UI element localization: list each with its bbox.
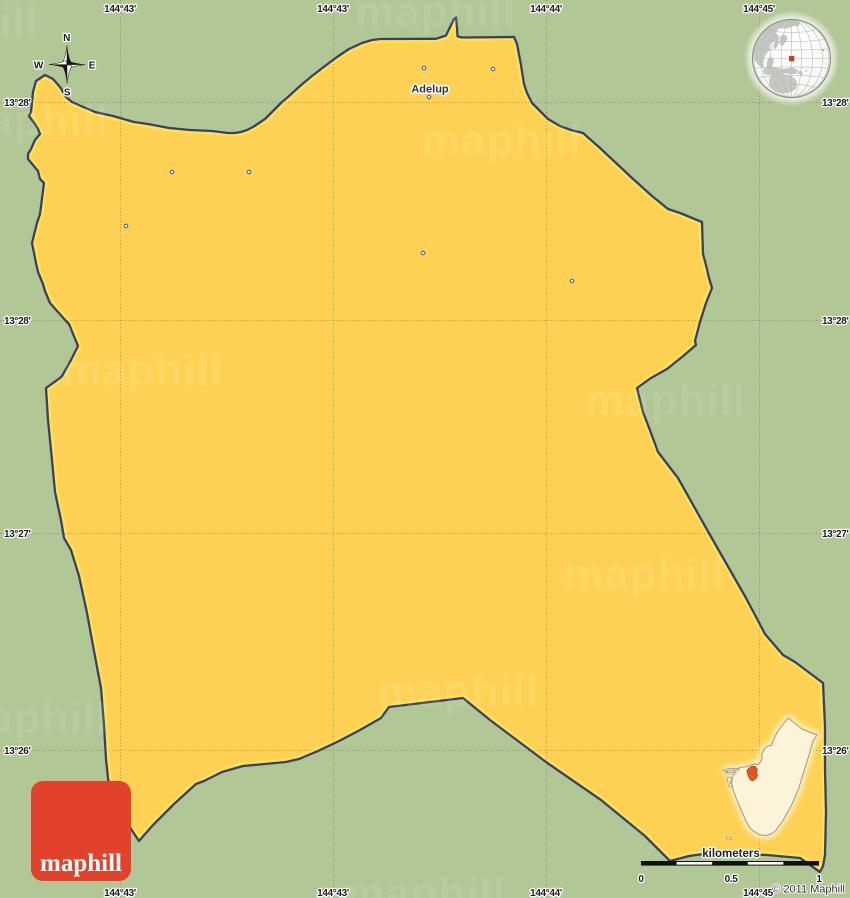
svg-text:maphill: maphill <box>378 667 539 716</box>
svg-text:N: N <box>63 33 70 44</box>
svg-text:Adelup: Adelup <box>411 84 449 96</box>
svg-text:13°28': 13°28' <box>4 98 31 109</box>
svg-text:13°27': 13°27' <box>822 529 849 540</box>
svg-text:13°28': 13°28' <box>822 316 849 327</box>
svg-text:144°43': 144°43' <box>104 888 136 898</box>
svg-text:144°44': 144°44' <box>530 4 562 15</box>
svg-text:0.5: 0.5 <box>725 874 739 885</box>
svg-text:maphill: maphill <box>421 116 582 165</box>
svg-text:maphill: maphill <box>0 0 39 48</box>
svg-text:13°27': 13°27' <box>4 529 31 540</box>
svg-text:W: W <box>34 61 44 72</box>
svg-text:13°26': 13°26' <box>822 746 849 757</box>
svg-text:maphill: maphill <box>40 850 122 877</box>
svg-text:0: 0 <box>638 874 644 885</box>
svg-text:144°43': 144°43' <box>317 888 349 898</box>
svg-text:144°45': 144°45' <box>743 4 775 15</box>
svg-text:maphill: maphill <box>355 0 516 36</box>
svg-text:maphill: maphill <box>585 376 746 425</box>
svg-text:kilometers: kilometers <box>702 848 760 860</box>
svg-text:13°26': 13°26' <box>4 746 31 757</box>
svg-text:13°28': 13°28' <box>4 316 31 327</box>
svg-text:maphill: maphill <box>564 550 725 599</box>
svg-text:E: E <box>89 61 96 72</box>
svg-text:144°43': 144°43' <box>317 4 349 15</box>
svg-text:S: S <box>64 88 71 99</box>
svg-text:144°44': 144°44' <box>530 888 562 898</box>
svg-text:144°45': 144°45' <box>743 888 775 898</box>
svg-text:© 2011 Maphill: © 2011 Maphill <box>772 884 845 896</box>
svg-text:maphill: maphill <box>0 694 109 743</box>
svg-text:144°43': 144°43' <box>104 4 136 15</box>
svg-text:13°28': 13°28' <box>822 98 849 109</box>
svg-text:maphill: maphill <box>62 346 223 395</box>
svg-text:maphill: maphill <box>345 869 506 898</box>
